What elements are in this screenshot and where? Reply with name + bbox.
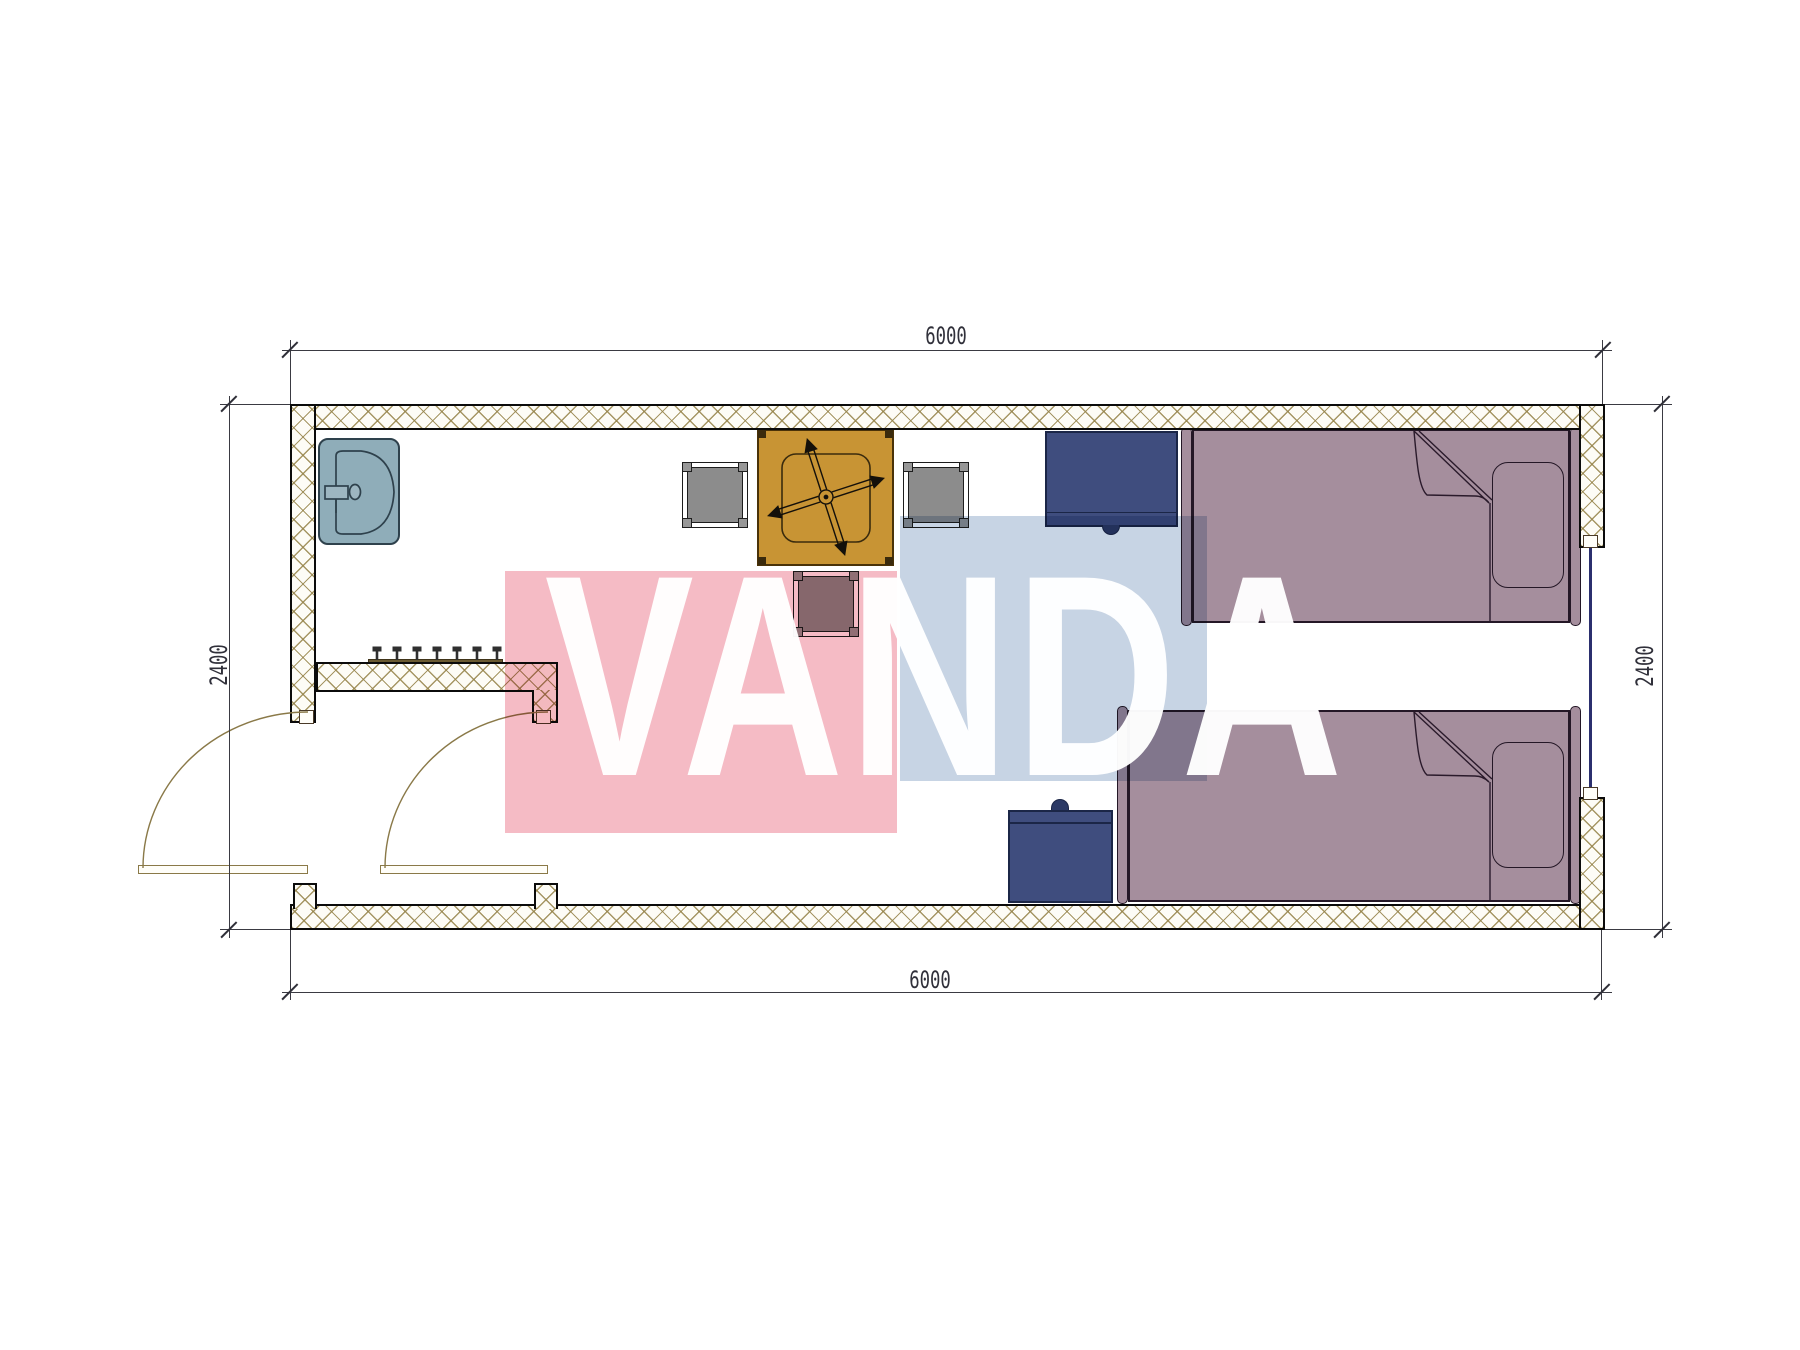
wall-east-lower bbox=[1579, 797, 1605, 930]
door-leaf-exterior bbox=[138, 865, 308, 874]
door-pilaster-sw bbox=[293, 883, 317, 909]
door-arc-exterior bbox=[143, 712, 308, 868]
table-corner-mark bbox=[885, 430, 893, 438]
wall-west bbox=[290, 404, 316, 723]
floor-plan-canvas: VANDA 6000 6000 2400 2400 bbox=[0, 0, 1800, 1350]
wall-north bbox=[290, 404, 1605, 430]
dim-line-right bbox=[1662, 396, 1663, 938]
watermark-text: VANDA bbox=[545, 532, 1348, 819]
window-jamb-upper bbox=[1583, 535, 1598, 548]
door-swing-arcs bbox=[143, 712, 548, 868]
window-glass-line bbox=[1589, 548, 1592, 787]
bed1-pillow bbox=[1492, 462, 1564, 588]
door-jamb-west bbox=[299, 710, 314, 724]
stool-leg bbox=[959, 462, 969, 472]
door-pilaster-inner bbox=[534, 883, 558, 909]
stool-leg bbox=[738, 462, 748, 472]
door-leaf-interior bbox=[380, 865, 548, 874]
dim-label-left: 2400 bbox=[205, 644, 233, 686]
dim-label-top: 6000 bbox=[925, 322, 967, 350]
wall-south bbox=[290, 904, 1605, 930]
dim-label-bottom: 6000 bbox=[909, 966, 951, 994]
sink-cabinet bbox=[318, 438, 400, 545]
window-jamb-lower bbox=[1583, 787, 1598, 800]
bed2-pillow bbox=[1492, 742, 1564, 868]
dim-line-top bbox=[282, 350, 1612, 351]
nightstand-lip bbox=[1047, 512, 1176, 514]
nightstand-top bbox=[1045, 431, 1178, 527]
dim-label-right: 2400 bbox=[1631, 645, 1659, 687]
stool-leg bbox=[903, 462, 913, 472]
stool-leg bbox=[682, 462, 692, 472]
table-corner-mark bbox=[758, 430, 766, 438]
wall-east-upper bbox=[1579, 404, 1605, 548]
